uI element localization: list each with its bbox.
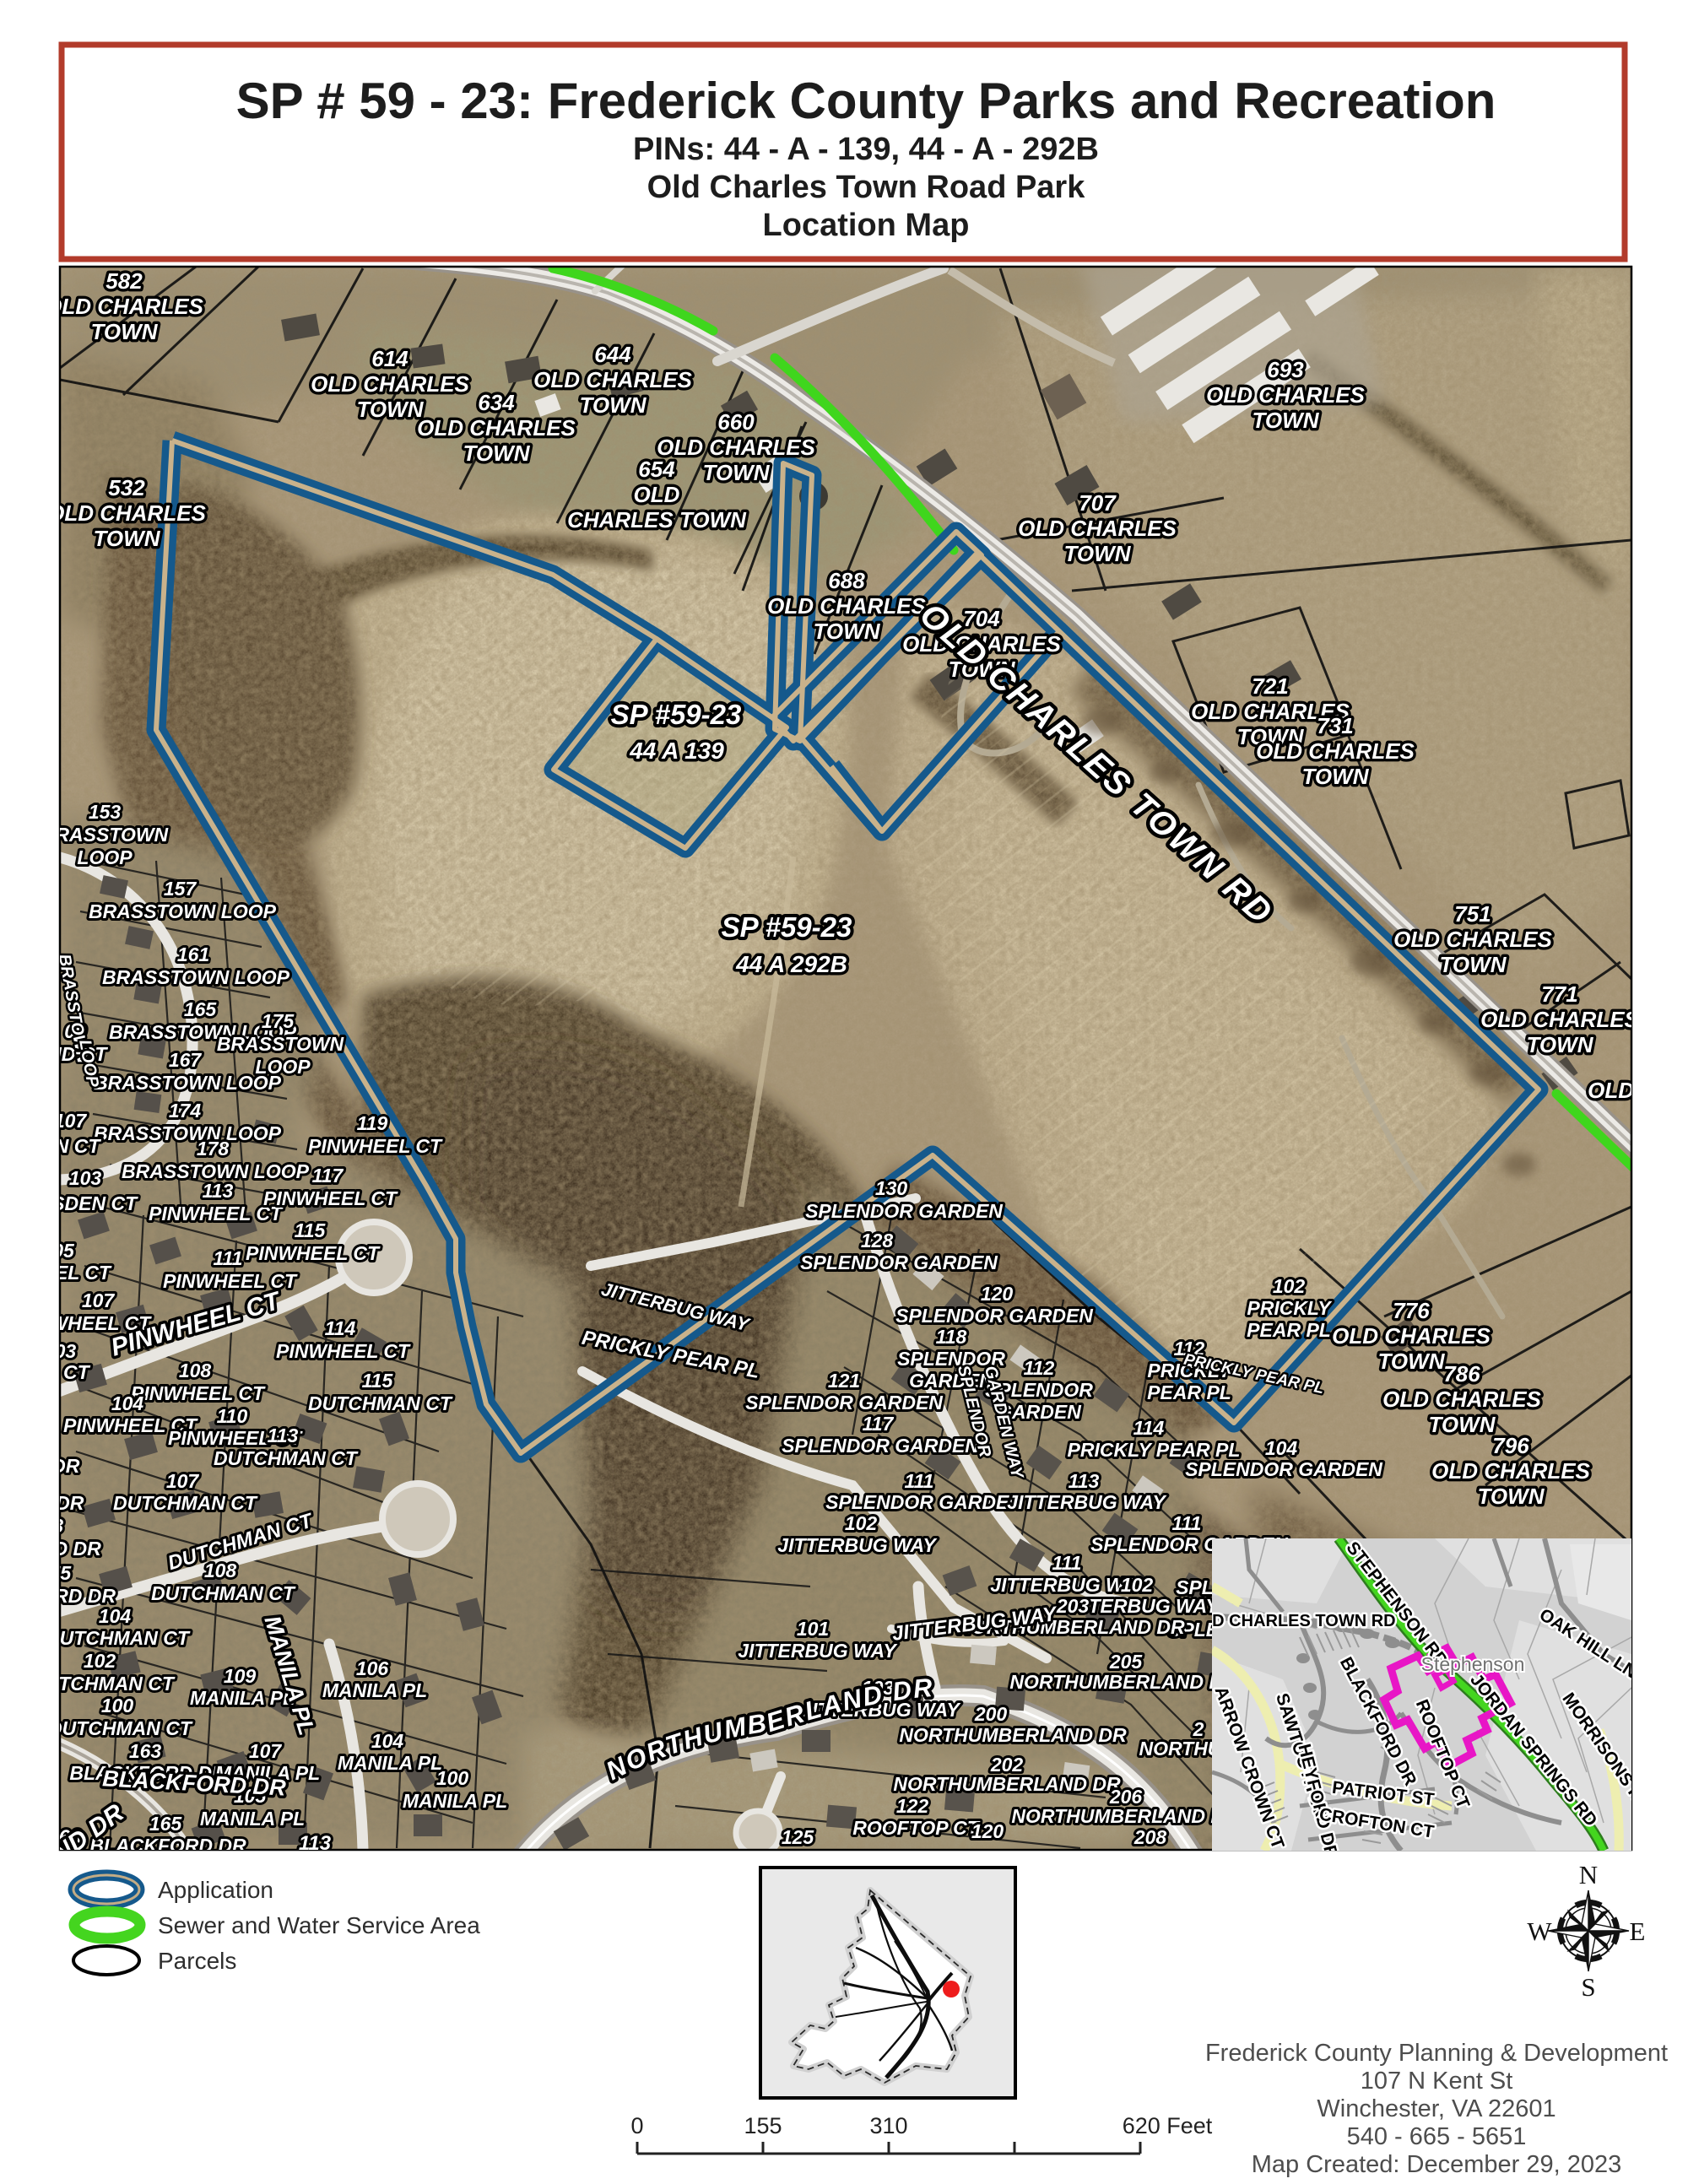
svg-text:TOWN: TOWN — [1252, 408, 1320, 433]
svg-text:OLD CHARLES: OLD CHARLES — [1382, 1387, 1541, 1412]
svg-text:TOWN: TOWN — [1064, 541, 1132, 566]
svg-text:111: 111 — [1172, 1512, 1202, 1534]
svg-text:44 A 139: 44 A 139 — [629, 738, 724, 764]
svg-text:111: 111 — [1052, 1552, 1082, 1574]
svg-text:200: 200 — [974, 1703, 1008, 1725]
svg-text:Stephenson: Stephenson — [1421, 1653, 1525, 1675]
svg-text:Sewer and Water Service Area: Sewer and Water Service Area — [158, 1912, 480, 1938]
svg-text:153: 153 — [89, 801, 122, 823]
svg-text:104: 104 — [1265, 1437, 1298, 1459]
svg-text:MANILA PL: MANILA PL — [322, 1679, 427, 1701]
svg-text:120: 120 — [981, 1283, 1014, 1305]
svg-text:OLD CHARLES: OLD CHARLES — [1480, 1007, 1639, 1032]
svg-text:OLD CHARLES TOWN RD: OLD CHARLES TOWN RD — [1188, 1612, 1395, 1630]
svg-text:TOWN: TOWN — [91, 319, 159, 344]
svg-text:OLD CHARLES: OLD CHARLES — [657, 435, 815, 460]
svg-text:TOWN: TOWN — [580, 392, 647, 418]
svg-text:BRASSTOWN LOOP: BRASSTOWN LOOP — [94, 1122, 282, 1144]
svg-text:114: 114 — [325, 1317, 356, 1339]
svg-text:660: 660 — [717, 409, 755, 435]
svg-text:NORTHUMBERLAND DR: NORTHUMBERLAND DR — [899, 1724, 1127, 1746]
svg-text:TOWN: TOWN — [94, 526, 161, 551]
svg-text:654: 654 — [638, 457, 675, 482]
svg-text:310: 310 — [869, 2113, 907, 2138]
svg-text:BRASSTOWN LOOP: BRASSTOWN LOOP — [102, 966, 290, 988]
svg-text:E: E — [1630, 1916, 1646, 1946]
svg-text:155: 155 — [744, 2113, 782, 2138]
svg-text:119: 119 — [357, 1112, 388, 1134]
svg-text:117: 117 — [863, 1413, 895, 1435]
svg-text:OLD CHARLES: OLD CHARLES — [417, 415, 576, 441]
svg-text:102: 102 — [1121, 1574, 1154, 1596]
svg-text:707: 707 — [1079, 490, 1117, 516]
svg-text:776: 776 — [1393, 1298, 1430, 1323]
svg-text:OLD CHARLES: OLD CHARLES — [1206, 382, 1365, 408]
svg-text:PINWHEEL CT: PINWHEEL CT — [246, 1242, 381, 1264]
svg-text:OLD CHARLES: OLD CHARLES — [1332, 1323, 1491, 1349]
svg-text:751: 751 — [1454, 901, 1491, 927]
svg-text:688: 688 — [828, 568, 865, 593]
svg-text:OLD CHARLES: OLD CHARLES — [47, 500, 206, 526]
svg-text:OLD CHARLES: OLD CHARLES — [533, 367, 692, 392]
svg-text:786: 786 — [1443, 1361, 1480, 1387]
svg-text:157: 157 — [164, 878, 197, 900]
svg-text:167: 167 — [169, 1049, 203, 1071]
svg-text:111: 111 — [905, 1470, 934, 1492]
svg-text:106: 106 — [356, 1657, 389, 1679]
svg-text:107: 107 — [249, 1740, 283, 1762]
svg-text:634: 634 — [478, 390, 515, 415]
svg-text:771: 771 — [1541, 981, 1577, 1007]
svg-text:ROOFTOP CT: ROOFTOP CT — [852, 1817, 980, 1839]
svg-text:SPLENDOR GARDEN: SPLENDOR GARDEN — [800, 1251, 998, 1273]
svg-text:SP #59-23: SP #59-23 — [611, 699, 742, 730]
svg-text:163: 163 — [129, 1740, 162, 1762]
svg-text:TOWN: TOWN — [1378, 1349, 1446, 1374]
svg-text:S: S — [1581, 1972, 1595, 2002]
svg-text:TOWN: TOWN — [1302, 764, 1370, 789]
svg-text:104: 104 — [99, 1605, 132, 1627]
svg-text:161: 161 — [177, 943, 209, 965]
svg-text:174: 174 — [169, 1100, 202, 1122]
svg-text:120: 120 — [971, 1820, 1004, 1842]
svg-text:108: 108 — [179, 1360, 212, 1381]
svg-text:LOOP: LOOP — [255, 1056, 311, 1078]
svg-text:PEAR PL: PEAR PL — [1247, 1319, 1331, 1341]
svg-text:103: 103 — [69, 1167, 102, 1189]
svg-text:DUTCHMAN CT: DUTCHMAN CT — [151, 1582, 296, 1604]
svg-text:178: 178 — [197, 1138, 230, 1160]
svg-text:113: 113 — [1069, 1470, 1100, 1492]
svg-text:100: 100 — [101, 1695, 134, 1716]
svg-text:PINWHEEL CT: PINWHEEL CT — [276, 1340, 411, 1362]
svg-text:SPLENDOR GARDEN: SPLENDOR GARDEN — [745, 1392, 943, 1414]
svg-text:107: 107 — [82, 1289, 116, 1311]
svg-text:121: 121 — [828, 1370, 860, 1392]
svg-text:100: 100 — [436, 1767, 469, 1789]
svg-text:TOWN: TOWN — [1440, 952, 1507, 977]
svg-text:PRICKLY: PRICKLY — [1247, 1297, 1333, 1319]
svg-text:PINWHEEL CT: PINWHEEL CT — [308, 1135, 443, 1157]
svg-text:115: 115 — [295, 1219, 327, 1241]
svg-text:128: 128 — [861, 1230, 894, 1251]
svg-text:JITTERBUG WAY: JITTERBUG WAY — [1007, 1491, 1167, 1513]
svg-text:BRASSTOWN LOOP: BRASSTOWN LOOP — [89, 900, 277, 922]
svg-text:DUTCHMAN CT: DUTCHMAN CT — [113, 1492, 258, 1514]
svg-text:Location Map: Location Map — [763, 208, 970, 243]
svg-text:OLD CHARLES: OLD CHARLES — [1431, 1458, 1590, 1484]
svg-text:620 Feet: 620 Feet — [1123, 2113, 1213, 2138]
svg-text:N: N — [1579, 1860, 1598, 1889]
svg-text:OLD: OLD — [634, 482, 680, 507]
svg-text:Map Created: December 29, 2023: Map Created: December 29, 2023 — [1252, 2151, 1621, 2178]
svg-text:107: 107 — [166, 1470, 200, 1492]
svg-text:TOWN: TOWN — [703, 460, 771, 485]
svg-text:MANILA PL: MANILA PL — [190, 1687, 295, 1709]
svg-text:OLD CHARLES: OLD CHARLES — [311, 371, 469, 397]
svg-text:102: 102 — [84, 1650, 116, 1672]
svg-text:540 - 665 - 5651: 540 - 665 - 5651 — [1347, 2123, 1527, 2150]
svg-text:JITTERBUG WAY: JITTERBUG WAY — [777, 1534, 938, 1556]
svg-text:TOWN: TOWN — [1478, 1484, 1545, 1509]
svg-text:Old Charles Town Road Park: Old Charles Town Road Park — [647, 170, 1086, 205]
svg-text:SP #59-23: SP #59-23 — [722, 911, 852, 943]
svg-text:205: 205 — [1109, 1651, 1144, 1673]
svg-text:532: 532 — [108, 475, 145, 500]
svg-text:SP # 59 - 23: Frederick County: SP # 59 - 23: Frederick County Parks and… — [236, 73, 1496, 129]
svg-text:114: 114 — [1133, 1417, 1165, 1439]
svg-text:118: 118 — [936, 1326, 967, 1348]
svg-text:Frederick County Planning & De: Frederick County Planning & Development — [1205, 2040, 1668, 2067]
svg-text:BRASSTOWN LOOP: BRASSTOWN LOOP — [94, 1072, 282, 1094]
svg-text:PINWHEEL CT: PINWHEEL CT — [263, 1187, 398, 1209]
svg-text:PEAR PL: PEAR PL — [1147, 1381, 1231, 1403]
svg-text:721: 721 — [1252, 673, 1288, 699]
svg-text:MANILA PL: MANILA PL — [338, 1752, 442, 1774]
svg-text:175: 175 — [262, 1010, 295, 1032]
svg-text:107 N Kent St: 107 N Kent St — [1361, 2068, 1513, 2095]
svg-text:DUTCHMAN CT: DUTCHMAN CT — [48, 1717, 193, 1739]
svg-text:TOWN: TOWN — [1429, 1412, 1496, 1437]
svg-text:DUTCHMAN CT: DUTCHMAN CT — [308, 1392, 453, 1414]
svg-text:LOOP: LOOP — [77, 846, 133, 868]
svg-text:OLD CHARLES: OLD CHARLES — [1256, 738, 1415, 764]
svg-text:693: 693 — [1267, 357, 1304, 382]
svg-text:117: 117 — [312, 1165, 344, 1187]
svg-text:CHARLES TOWN: CHARLES TOWN — [567, 507, 747, 532]
svg-text:208: 208 — [1133, 1826, 1167, 1848]
svg-text:113: 113 — [268, 1424, 299, 1446]
svg-text:SPLENDOR GARDEN: SPLENDOR GARDEN — [895, 1305, 1093, 1327]
svg-text:101: 101 — [797, 1618, 829, 1640]
svg-text:102: 102 — [1273, 1275, 1306, 1297]
svg-text:796: 796 — [1492, 1433, 1529, 1458]
svg-text:DUTCHMAN CT: DUTCHMAN CT — [46, 1627, 191, 1649]
svg-text:NORTHUMBERLAND DR: NORTHUMBERLAND DR — [893, 1773, 1121, 1795]
svg-text:BRASSTOWN: BRASSTOWN — [41, 824, 169, 846]
svg-text:OLD CHARLES: OLD CHARLES — [45, 294, 203, 319]
svg-text:104: 104 — [371, 1730, 404, 1752]
svg-text:104: 104 — [111, 1392, 144, 1414]
svg-text:TOWN: TOWN — [1527, 1032, 1594, 1057]
svg-text:0: 0 — [630, 2113, 643, 2138]
svg-text:SPLENDOR GARDEN: SPLENDOR GARDEN — [782, 1435, 979, 1457]
svg-text:JITTERBUG WAY: JITTERBUG WAY — [738, 1640, 898, 1662]
svg-text:614: 614 — [371, 346, 408, 371]
svg-text:PINWHEEL CT: PINWHEEL CT — [163, 1270, 298, 1292]
svg-text:NORTHUMBERLAND DR: NORTHUMBERLAND DR — [1009, 1671, 1237, 1693]
svg-text:102: 102 — [845, 1512, 878, 1534]
svg-text:122: 122 — [896, 1795, 929, 1817]
svg-text:Application: Application — [158, 1877, 273, 1903]
svg-text:Parcels: Parcels — [158, 1948, 236, 1974]
svg-text:130: 130 — [875, 1177, 908, 1199]
svg-text:NORTHUMBERLAND DR: NORTHUMBERLAND DR — [1011, 1805, 1239, 1827]
svg-text:SPLENDOR GARDEN: SPLENDOR GARDEN — [825, 1491, 1023, 1513]
svg-text:110: 110 — [217, 1405, 248, 1427]
svg-text:OLD CHARLES: OLD CHARLES — [1393, 927, 1552, 952]
svg-text:Winchester, VA 22601: Winchester, VA 22601 — [1317, 2095, 1555, 2122]
svg-text:112: 112 — [1024, 1357, 1055, 1379]
svg-text:644: 644 — [594, 342, 631, 367]
svg-text:DUTCHMAN CT: DUTCHMAN CT — [214, 1447, 359, 1469]
svg-text:MANILA PL: MANILA PL — [403, 1790, 507, 1812]
svg-text:BRASSTOWN: BRASSTOWN — [217, 1033, 344, 1055]
svg-text:PINWHEEL CT: PINWHEEL CT — [131, 1382, 266, 1404]
svg-text:SPLENDOR GARDEN: SPLENDOR GARDEN — [1185, 1458, 1382, 1480]
svg-text:TOWN: TOWN — [357, 397, 425, 422]
svg-text:125: 125 — [782, 1826, 815, 1848]
svg-text:44 A 292B: 44 A 292B — [735, 951, 847, 977]
svg-text:111: 111 — [214, 1247, 243, 1269]
svg-text:OLD CHARLES: OLD CHARLES — [1018, 516, 1177, 541]
svg-text:731: 731 — [1317, 713, 1353, 738]
svg-text:OLD CHARLES: OLD CHARLES — [767, 593, 926, 619]
svg-text:TOWN: TOWN — [463, 441, 531, 466]
svg-text:GARDEN: GARDEN — [909, 1370, 993, 1392]
svg-text:203: 203 — [1056, 1595, 1090, 1617]
svg-text:SPLENDOR GARDEN: SPLENDOR GARDEN — [805, 1200, 1003, 1222]
svg-text:115: 115 — [362, 1370, 394, 1392]
svg-text:165: 165 — [149, 1813, 183, 1835]
svg-text:TOWN: TOWN — [814, 619, 881, 644]
svg-text:165: 165 — [184, 998, 218, 1020]
svg-text:W: W — [1527, 1916, 1552, 1946]
svg-text:MANILA PL: MANILA PL — [200, 1808, 305, 1830]
svg-text:109: 109 — [224, 1665, 257, 1687]
svg-text:582: 582 — [105, 268, 143, 294]
svg-text:PINs: 44 - A - 139, 44 - A - 2: PINs: 44 - A - 139, 44 - A - 292B — [633, 132, 1099, 167]
svg-text:113: 113 — [203, 1180, 234, 1202]
